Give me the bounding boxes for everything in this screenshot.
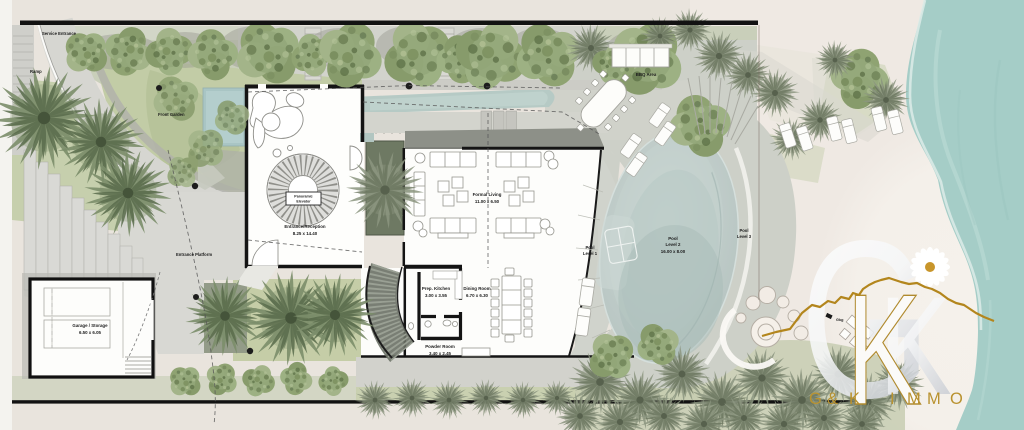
svg-text:Level 1: Level 1 [583, 251, 598, 256]
svg-text:I: I [890, 390, 895, 408]
svg-text:M: M [907, 390, 921, 408]
svg-text:Formal Living: Formal Living [473, 192, 502, 197]
svg-text:Pool: Pool [739, 228, 748, 233]
svg-text:Front Garden: Front Garden [158, 112, 185, 117]
svg-text:8.25 x 14.40: 8.25 x 14.40 [293, 231, 318, 236]
svg-text:G: G [809, 390, 822, 408]
svg-text:Level 3: Level 3 [737, 234, 752, 239]
svg-text:11.00 x 6.50: 11.00 x 6.50 [475, 199, 500, 204]
svg-text:&: & [827, 390, 838, 408]
svg-text:3.00 x 3.55: 3.00 x 3.55 [425, 293, 448, 298]
svg-text:Dining Room: Dining Room [463, 286, 490, 291]
svg-text:K: K [849, 390, 860, 408]
svg-text:Garage / Storage: Garage / Storage [72, 323, 108, 328]
svg-text:Entrance Platform: Entrance Platform [176, 252, 212, 257]
svg-text:M: M [927, 390, 941, 408]
svg-text:Level 2: Level 2 [666, 242, 681, 247]
svg-text:Gkg: Gkg [836, 318, 844, 322]
svg-text:Ramp: Ramp [30, 69, 42, 74]
svg-text:BBQ Area: BBQ Area [636, 72, 657, 77]
svg-text:Pool: Pool [668, 236, 678, 241]
svg-text:3.40 x 2.45: 3.40 x 2.45 [429, 351, 452, 356]
svg-text:Powder Room: Powder Room [425, 344, 455, 349]
svg-text:16.00 x 8.00: 16.00 x 8.00 [661, 249, 686, 254]
svg-text:6.70 x 6.30: 6.70 x 6.30 [466, 293, 489, 298]
svg-text:6.50 x 6.05: 6.50 x 6.05 [79, 330, 102, 335]
svg-text:Elevator: Elevator [296, 200, 311, 204]
svg-text:Entrance/Reception: Entrance/Reception [284, 224, 326, 229]
svg-text:Service Entrance: Service Entrance [42, 31, 77, 36]
svg-text:Pool: Pool [585, 245, 594, 250]
svg-text:Prep. Kitchen: Prep. Kitchen [422, 286, 451, 291]
svg-text:O: O [950, 390, 963, 408]
svg-text:Panoramic: Panoramic [294, 195, 312, 199]
